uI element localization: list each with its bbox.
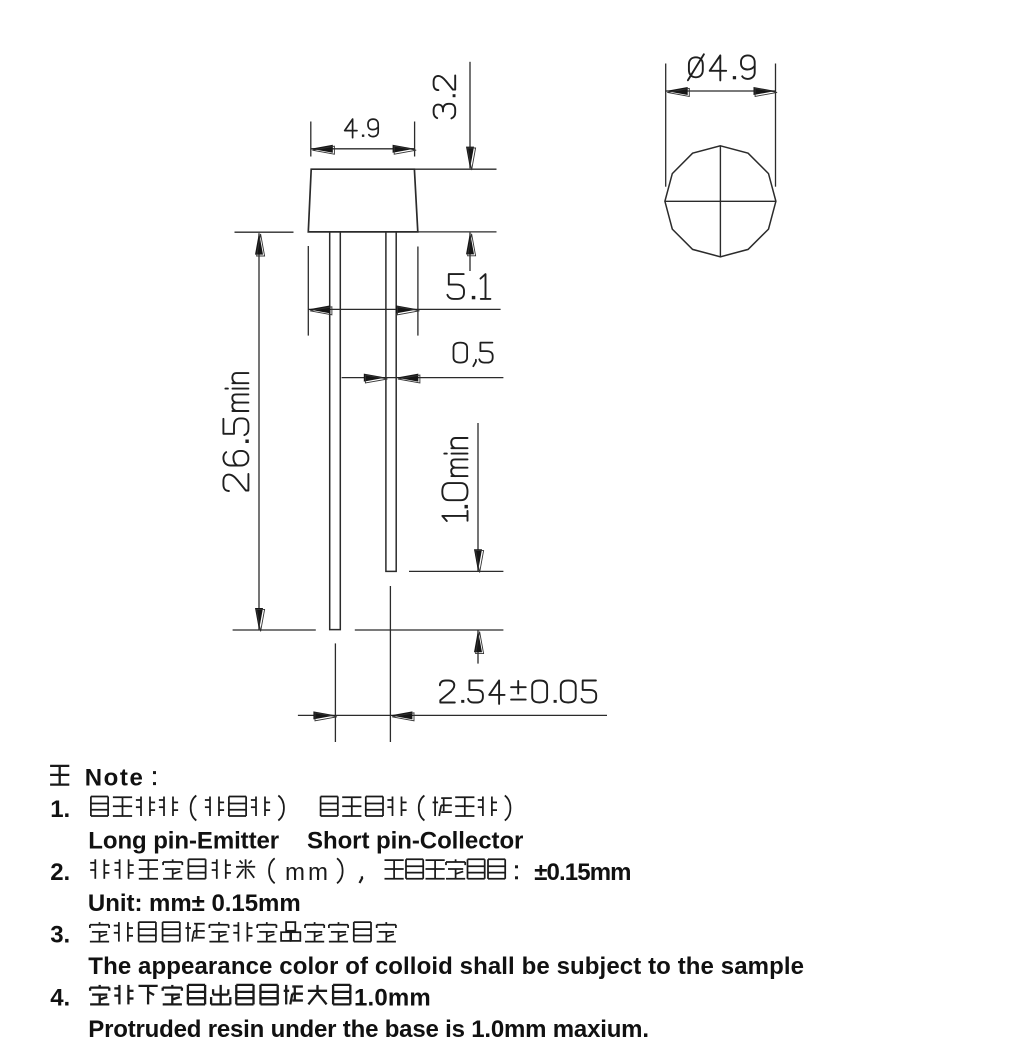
svg-text:mm: mm: [285, 859, 328, 886]
svg-text:1.: 1.: [50, 796, 70, 823]
svg-text:3.: 3.: [50, 922, 70, 949]
svg-text:Note: Note: [85, 765, 143, 792]
svg-text:2.: 2.: [50, 859, 70, 886]
svg-text:4.: 4.: [50, 984, 70, 1011]
svg-text:1.0mm: 1.0mm: [354, 984, 431, 1011]
svg-text:Unit: mm± 0.15mm: Unit: mm± 0.15mm: [88, 890, 301, 917]
svg-text:Long pin-Emitter: Long pin-Emitter: [88, 827, 279, 854]
svg-text:Short pin-Collector: Short pin-Collector: [307, 827, 523, 854]
svg-text:±0.15mm: ±0.15mm: [534, 859, 631, 886]
svg-text:Protruded resin under the base: Protruded resin under the base is 1.0mm …: [88, 1016, 649, 1043]
svg-text:The appearance color of colloi: The appearance color of colloid shall be…: [88, 953, 804, 980]
